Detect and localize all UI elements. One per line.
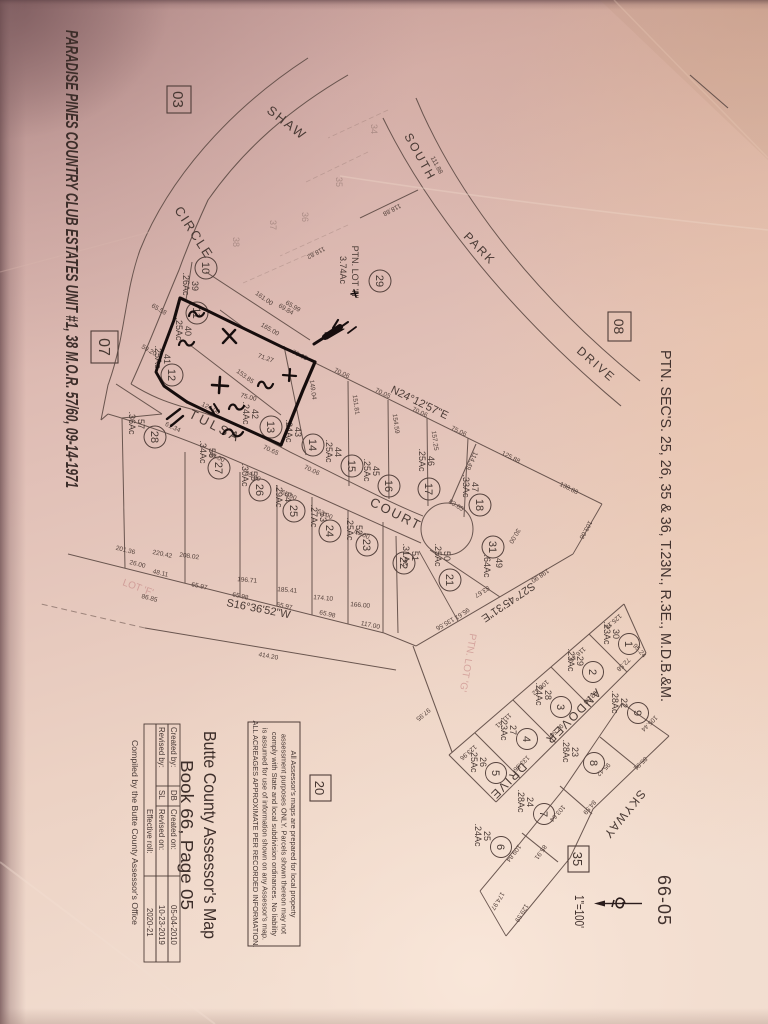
svg-text:.33Ac: .33Ac — [461, 474, 471, 498]
svg-text:36: 36 — [300, 212, 310, 222]
svg-text:23: 23 — [360, 539, 372, 551]
svg-text:.64Ac: .64Ac — [482, 554, 492, 578]
svg-text:05-04-2010: 05-04-2010 — [169, 905, 178, 946]
svg-text:26: 26 — [253, 484, 265, 496]
svg-text:07: 07 — [95, 338, 112, 356]
svg-text:PTN. SEC'S. 25, 26, 35 & 36, T: PTN. SEC'S. 25, 26, 35 & 36, T.23N., R.3… — [657, 350, 673, 702]
svg-text:Created on:: Created on: — [169, 809, 178, 850]
svg-text:All Assessor's maps are prepar: All Assessor's maps are prepared for loc… — [289, 751, 298, 918]
svg-text:2: 2 — [586, 669, 598, 675]
svg-text:13: 13 — [264, 421, 276, 433]
svg-text:49: 49 — [494, 558, 504, 568]
svg-text:14: 14 — [306, 439, 318, 451]
svg-text:ALL ACREAGES APPROXIMATE PER R: ALL ACREAGES APPROXIMATE PER RECORDED IN… — [251, 721, 260, 948]
svg-text:25: 25 — [287, 505, 299, 517]
svg-text:.36Ac: .36Ac — [127, 411, 137, 435]
svg-text:2020-21: 2020-21 — [145, 908, 154, 937]
svg-text:1"=100': 1"=100' — [572, 895, 586, 928]
svg-text:4: 4 — [520, 736, 532, 742]
svg-text:10: 10 — [199, 262, 211, 274]
svg-text:.28Ac: .28Ac — [561, 739, 571, 763]
svg-text:.24Ac: .24Ac — [241, 401, 251, 425]
svg-text:31: 31 — [486, 541, 498, 553]
svg-text:24: 24 — [323, 525, 335, 537]
svg-text:Compiled by the Butte County A: Compiled by the Butte County Assessor's … — [130, 740, 139, 925]
svg-text:.27Ac: .27Ac — [309, 504, 319, 528]
svg-text:Created by:: Created by: — [169, 727, 178, 767]
svg-text:21: 21 — [443, 574, 455, 586]
svg-text:DB: DB — [169, 790, 178, 801]
svg-text:.34Ac: .34Ac — [198, 440, 208, 464]
svg-text:18: 18 — [473, 499, 485, 511]
svg-text:29: 29 — [373, 275, 385, 287]
svg-text:comply with State and local su: comply with State and local subdivision … — [270, 732, 279, 936]
svg-text:08: 08 — [611, 319, 627, 335]
svg-text:7: 7 — [537, 811, 549, 817]
svg-text:.25Ac: .25Ac — [345, 517, 355, 541]
svg-text:8: 8 — [587, 760, 599, 766]
svg-text:PARADISE PINES COUNTRY CLUB ES: PARADISE PINES COUNTRY CLUB ESTATES UNIT… — [62, 30, 82, 488]
svg-text:10-23-2019: 10-23-2019 — [157, 905, 166, 945]
svg-text:34: 34 — [369, 124, 379, 134]
svg-text:Revised by:: Revised by: — [157, 727, 166, 768]
svg-text:Revised on:: Revised on: — [157, 809, 166, 850]
svg-text:38: 38 — [231, 237, 241, 247]
svg-text:.25Ac: .25Ac — [324, 439, 334, 463]
svg-text:.25Ac: .25Ac — [433, 543, 443, 567]
svg-text:37: 37 — [268, 220, 278, 230]
svg-text:16: 16 — [382, 480, 394, 492]
svg-text:6: 6 — [494, 844, 506, 850]
svg-text:SL: SL — [157, 790, 166, 800]
svg-text:.24Ac: .24Ac — [473, 823, 483, 847]
svg-text:.25Ac: .25Ac — [417, 448, 427, 472]
svg-text:20: 20 — [312, 781, 327, 795]
svg-text:35: 35 — [570, 852, 585, 866]
svg-text:Effective roll:: Effective roll: — [145, 809, 154, 854]
svg-text:.28Ac: .28Ac — [516, 789, 526, 813]
svg-text:03: 03 — [169, 91, 186, 108]
svg-text:is assumed for use of informat: is assumed for use of information shown … — [261, 728, 270, 940]
svg-text:35: 35 — [334, 177, 344, 187]
svg-text:.31Ac: .31Ac — [401, 543, 411, 567]
svg-text:66-05: 66-05 — [654, 875, 674, 926]
svg-text:.25Ac: .25Ac — [362, 458, 372, 482]
svg-text:3: 3 — [554, 704, 566, 710]
svg-text:3.74Ac: 3.74Ac — [338, 256, 348, 285]
svg-text:.28Ac: .28Ac — [610, 690, 620, 714]
svg-text:12: 12 — [165, 369, 177, 381]
svg-text:.26Ac: .26Ac — [181, 272, 191, 296]
svg-text:9: 9 — [631, 710, 643, 716]
svg-text:17: 17 — [422, 483, 434, 495]
svg-text:28: 28 — [148, 431, 160, 443]
svg-text:15: 15 — [345, 460, 357, 472]
svg-text:5: 5 — [489, 770, 501, 776]
svg-text:Butte County Assessor's Map: Butte County Assessor's Map — [200, 731, 220, 939]
svg-text:assessment purposes ONLY. Par: assessment purposes ONLY. Parcels shown … — [280, 734, 289, 934]
svg-text:.25Ac: .25Ac — [174, 317, 184, 341]
